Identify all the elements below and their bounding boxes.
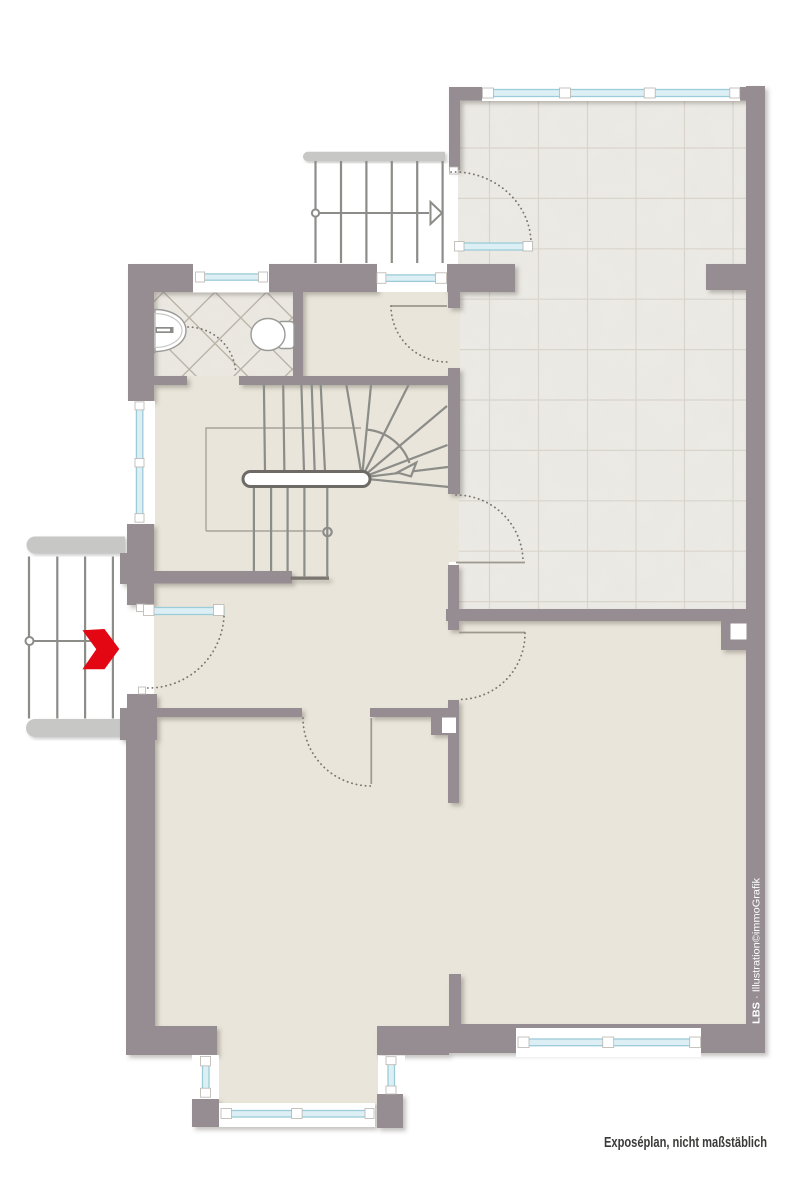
svg-text:Exposéplan, nicht maßstäblich: Exposéplan, nicht maßstäblich <box>604 1134 767 1151</box>
svg-text:LBS · Illustration©immoGrafik: LBS · Illustration©immoGrafik <box>751 877 763 1024</box>
